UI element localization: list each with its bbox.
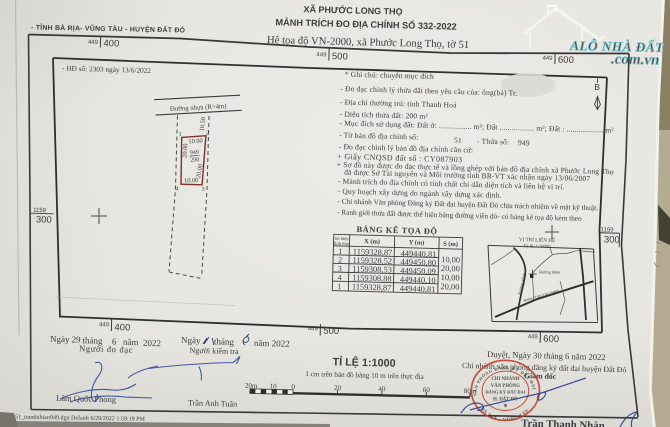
svg-text:449: 449 — [308, 326, 319, 332]
svg-text:Ngày: Ngày — [50, 334, 70, 345]
svg-text:tháng: tháng — [214, 336, 235, 347]
svg-text:Đường nhựa: Đường nhựa — [539, 270, 560, 275]
svg-text:2022: 2022 — [143, 338, 161, 348]
svg-text:Lâm Quốc Phong: Lâm Quốc Phong — [56, 393, 117, 405]
svg-text:★: ★ — [503, 403, 508, 409]
svg-text:TỈ LỆ 1:1000: TỈ LỆ 1:1000 — [332, 355, 395, 370]
svg-text:Y (m): Y (m) — [409, 239, 425, 246]
svg-text:VĂN PHÒNG: VĂN PHÒNG — [491, 383, 520, 389]
svg-text:449: 449 — [316, 52, 327, 58]
svg-text:10.00: 10.00 — [184, 177, 199, 184]
svg-text:Người đo đạc: Người đo đạc — [79, 343, 133, 354]
svg-text:1159328,87: 1159328,87 — [352, 282, 392, 292]
svg-text:20,00: 20,00 — [441, 264, 460, 273]
svg-text:20.00: 20.00 — [182, 143, 190, 158]
svg-text:449: 449 — [528, 334, 539, 340]
svg-text:Tỷ lệ: 1/10000: Tỷ lệ: 1/10000 — [523, 243, 551, 249]
svg-text:Trần Anh Tuân: Trần Anh Tuân — [188, 398, 238, 408]
svg-text:10,00: 10,00 — [441, 273, 460, 282]
svg-text:Ngày: Ngày — [181, 335, 201, 346]
svg-text:B: B — [594, 82, 600, 92]
svg-text:1: 1 — [179, 131, 182, 138]
svg-text:4: 4 — [338, 273, 342, 282]
svg-text:400: 400 — [103, 38, 119, 49]
svg-text:300: 300 — [604, 234, 620, 245]
svg-text:449440,81: 449440,81 — [400, 284, 436, 294]
svg-text:500: 500 — [323, 326, 339, 337]
svg-text:đỉnh thửa: đỉnh thửa — [333, 241, 351, 246]
svg-text:năm 2022: năm 2022 — [254, 338, 290, 349]
svg-text:449: 449 — [542, 56, 553, 62]
svg-text:600: 600 — [558, 55, 574, 66]
svg-text:20,00: 20,00 — [440, 282, 459, 291]
svg-text:500: 500 — [332, 51, 348, 62]
svg-text:600: 600 — [543, 334, 559, 345]
svg-text:CHI NHÁNH: CHI NHÁNH — [491, 376, 519, 382]
svg-text:X (m): X (m) — [364, 238, 380, 245]
svg-text:2: 2 — [206, 130, 209, 137]
svg-text:449: 449 — [99, 322, 110, 328]
svg-text:1: 1 — [337, 282, 341, 291]
svg-text:300: 300 — [36, 214, 52, 225]
svg-text:3: 3 — [338, 264, 342, 273]
svg-text:- Thửa số:: - Thửa số: — [477, 137, 510, 147]
svg-text:3: 3 — [202, 186, 205, 193]
svg-text:949: 949 — [518, 138, 530, 147]
svg-text:449: 449 — [88, 40, 99, 46]
svg-text:Người kiểm tra: Người kiểm tra — [189, 346, 239, 356]
svg-text:400: 400 — [114, 322, 130, 333]
svg-text:200: 200 — [190, 157, 199, 164]
svg-text:S (m): S (m) — [443, 241, 458, 248]
svg-text:Trần Thanh Nhàn: Trần Thanh Nhàn — [521, 418, 605, 427]
svg-text:10.00: 10.00 — [188, 138, 203, 146]
svg-text:ĐĂNG KÝ ĐẤT ĐAI: ĐĂNG KÝ ĐẤT ĐAI — [485, 390, 525, 395]
svg-text:51: 51 — [454, 135, 462, 144]
